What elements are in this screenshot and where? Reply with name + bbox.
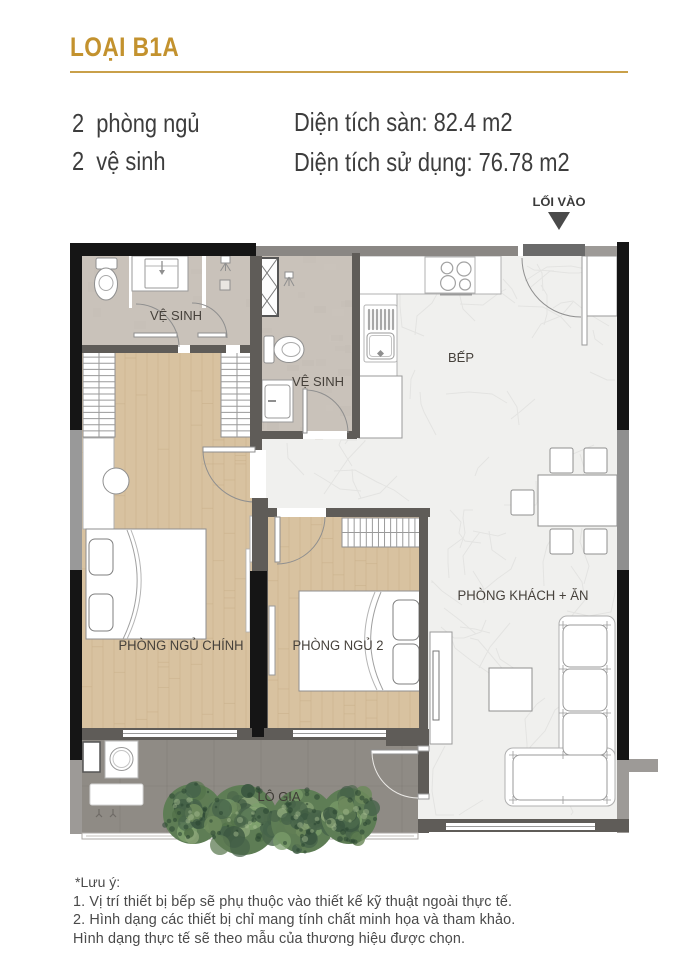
svg-text:PHÒNG NGỦ CHÍNH: PHÒNG NGỦ CHÍNH — [119, 638, 244, 653]
svg-text:PHÒNG NGỦ 2: PHÒNG NGỦ 2 — [293, 638, 384, 653]
svg-text:VỆ SINH: VỆ SINH — [292, 374, 344, 389]
svg-text:VỆ SINH: VỆ SINH — [150, 308, 202, 323]
svg-text:BẾP: BẾP — [448, 350, 474, 365]
svg-text:PHÒNG KHÁCH + ĂN: PHÒNG KHÁCH + ĂN — [458, 588, 589, 603]
svg-text:LỐI VÀO: LỐI VÀO — [533, 194, 586, 209]
svg-text:LÔ GIA: LÔ GIA — [258, 789, 302, 804]
